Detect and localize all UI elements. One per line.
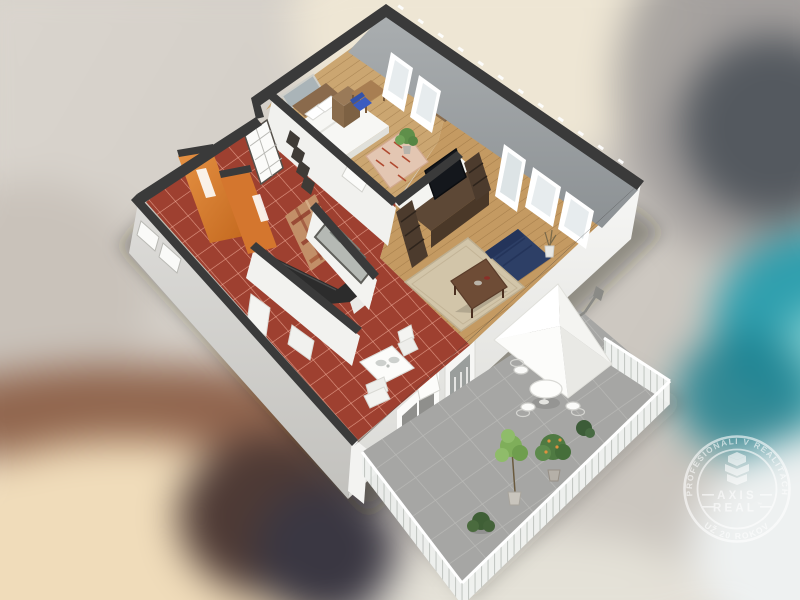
badge-arc-bottom-text: UŽ 20 ROKOV (702, 520, 771, 541)
brand-trademark: ™ (757, 502, 762, 508)
screenshot-root: PROFESIONÁLI V REALITÁCH UŽ 20 ROKOV AXI… (0, 0, 800, 600)
brand-real: REAL (713, 503, 757, 515)
terrace-table (530, 380, 562, 409)
watermark-badge: PROFESIONÁLI V REALITÁCH UŽ 20 ROKOV AXI… (685, 437, 790, 542)
brand-axis: AXIS (717, 490, 757, 502)
building-logo-icon (725, 452, 749, 485)
badge-brand: AXIS REAL ™ (702, 490, 772, 515)
floor-plan-render: PROFESIONÁLI V REALITÁCH UŽ 20 ROKOV AXI… (0, 0, 800, 600)
badge-arc-top-text: PROFESIONÁLI V REALITÁCH (685, 437, 789, 497)
